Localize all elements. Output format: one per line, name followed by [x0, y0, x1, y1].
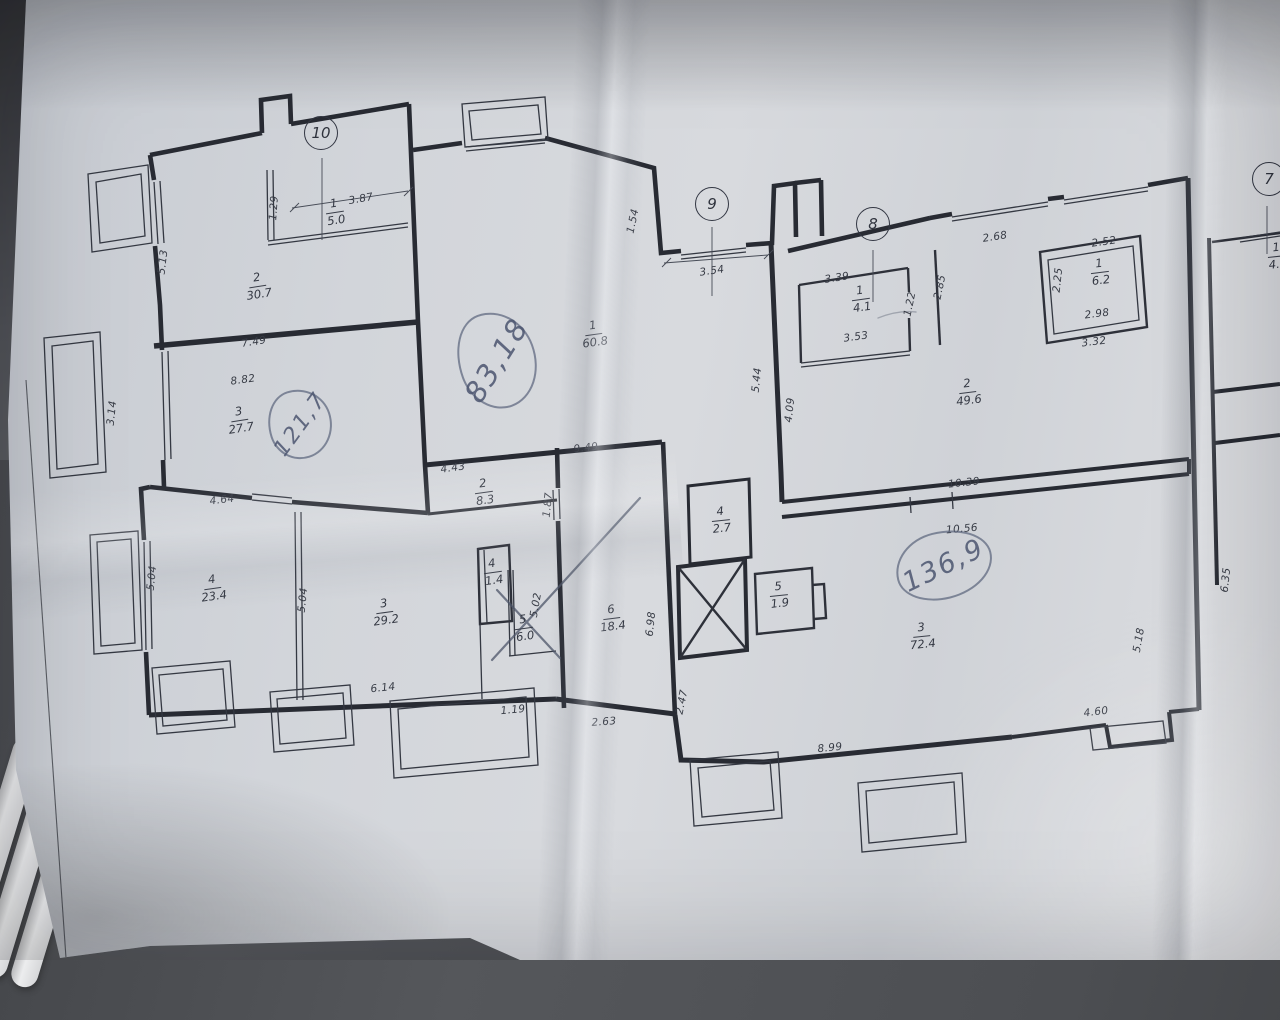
dimension-label: 3.87 — [348, 191, 375, 207]
dimension-label: 2.25 — [1051, 267, 1066, 293]
room-label: 16.2 — [1089, 257, 1111, 287]
handwritten-area-total: 136,9 — [888, 520, 1000, 610]
room-area: 49.6 — [955, 391, 982, 408]
room-area: 2.7 — [712, 520, 732, 535]
axis-marker-7: 7 — [1252, 162, 1280, 196]
dimension-label: 2.85 — [932, 274, 949, 301]
room-area: 18.4 — [599, 617, 626, 634]
room-area: 29.2 — [372, 611, 399, 628]
dimension-label: 9.49 — [573, 441, 599, 456]
room-label: 15.0 — [324, 197, 346, 228]
dimension-label: 2.63 — [591, 715, 617, 729]
axis-marker-8: 8 — [856, 207, 890, 241]
axis-marker-10: 10 — [304, 116, 338, 150]
plan-labels: 1.293.875.137.498.823.144.645.045.046.14… — [0, 0, 1280, 960]
room-label: 423.4 — [198, 572, 227, 603]
dimension-label: 3.14 — [105, 400, 120, 426]
dimension-label: 4.60 — [1083, 705, 1109, 720]
dimension-label: 3.32 — [1081, 335, 1107, 350]
dimension-label: 3.54 — [699, 263, 725, 278]
room-label: 327.7 — [225, 404, 255, 436]
room-area: 1.4 — [484, 571, 504, 587]
handwritten-area-total: 121,7 — [259, 381, 341, 467]
dimension-label: 8.99 — [817, 741, 843, 756]
dimension-label: 1.87 — [541, 492, 556, 518]
handwritten-text: 136,9 — [898, 532, 990, 598]
dimension-label: 1.22 — [902, 291, 919, 318]
axis-marker-9: 9 — [695, 187, 729, 221]
room-label: 230.7 — [243, 270, 273, 302]
dimension-label: 4.64 — [209, 493, 235, 508]
room-label: 249.6 — [954, 377, 983, 408]
room-label: 56.0 — [513, 613, 535, 643]
room-area: 4.5 — [1268, 256, 1280, 271]
room-label: 41.4 — [482, 557, 504, 587]
dimension-label: 5.18 — [1131, 627, 1147, 654]
dimension-label: 6.98 — [644, 611, 659, 637]
room-label: 14.1 — [850, 284, 872, 314]
handwritten-area-total: 83,18 — [444, 301, 551, 420]
dimension-label: 1.29 — [267, 195, 281, 221]
floor-plan-paper: 1.293.875.137.498.823.144.645.045.046.14… — [0, 0, 1280, 960]
dimension-label: 5.04 — [296, 587, 311, 613]
dimension-label: 5.44 — [750, 367, 765, 393]
room-area: 60.8 — [581, 333, 608, 350]
room-area: 1.9 — [770, 595, 790, 610]
room-area: 23.4 — [200, 587, 227, 604]
handwritten-text: 121,7 — [268, 387, 331, 461]
dimension-label: 2.98 — [1084, 307, 1110, 322]
dimension-label: 2.68 — [982, 229, 1009, 245]
room-area: 27.7 — [227, 418, 254, 435]
handwritten-text: 83,18 — [458, 312, 536, 409]
dimension-label: 6.14 — [370, 681, 396, 696]
dimension-label: 6.35 — [1219, 567, 1234, 593]
dimension-label: 5.13 — [156, 249, 171, 275]
room-label: 372.4 — [908, 621, 936, 652]
room-area: 6.0 — [515, 627, 535, 643]
dimension-label: 8.82 — [230, 372, 256, 387]
room-label: 42.7 — [710, 505, 731, 535]
room-area: 72.4 — [909, 635, 936, 651]
dimension-label: 10.39 — [947, 475, 980, 490]
room-area: 4.1 — [852, 298, 872, 314]
room-area: 6.2 — [1091, 271, 1111, 287]
room-label: 160.8 — [579, 318, 608, 349]
room-label: 51.9 — [768, 580, 789, 610]
dimension-label: 4.09 — [783, 397, 798, 423]
dimension-label: 3.53 — [843, 329, 869, 344]
room-label: 329.2 — [370, 596, 399, 627]
room-number: 1 — [1267, 241, 1280, 257]
dimension-label: 1.19 — [500, 703, 526, 717]
dimension-label: 3.39 — [824, 270, 851, 286]
dimension-label: 1.54 — [625, 208, 642, 235]
dimension-label: 4.43 — [440, 460, 466, 475]
dimension-label: 2.52 — [1091, 234, 1117, 249]
dimension-label: 2.47 — [674, 689, 691, 716]
room-label: 28.3 — [473, 477, 495, 507]
room-area: 5.0 — [326, 211, 346, 227]
photo-of-floor-plan: { "scene": { "description": "Photograph … — [0, 0, 1280, 960]
room-label: 618.4 — [598, 603, 627, 634]
room-area: 8.3 — [475, 491, 495, 507]
room-area: 30.7 — [245, 284, 272, 301]
dimension-label: 5.04 — [145, 565, 160, 591]
room-label: 14.5 — [1266, 241, 1280, 271]
dimension-label: 7.49 — [241, 334, 268, 350]
